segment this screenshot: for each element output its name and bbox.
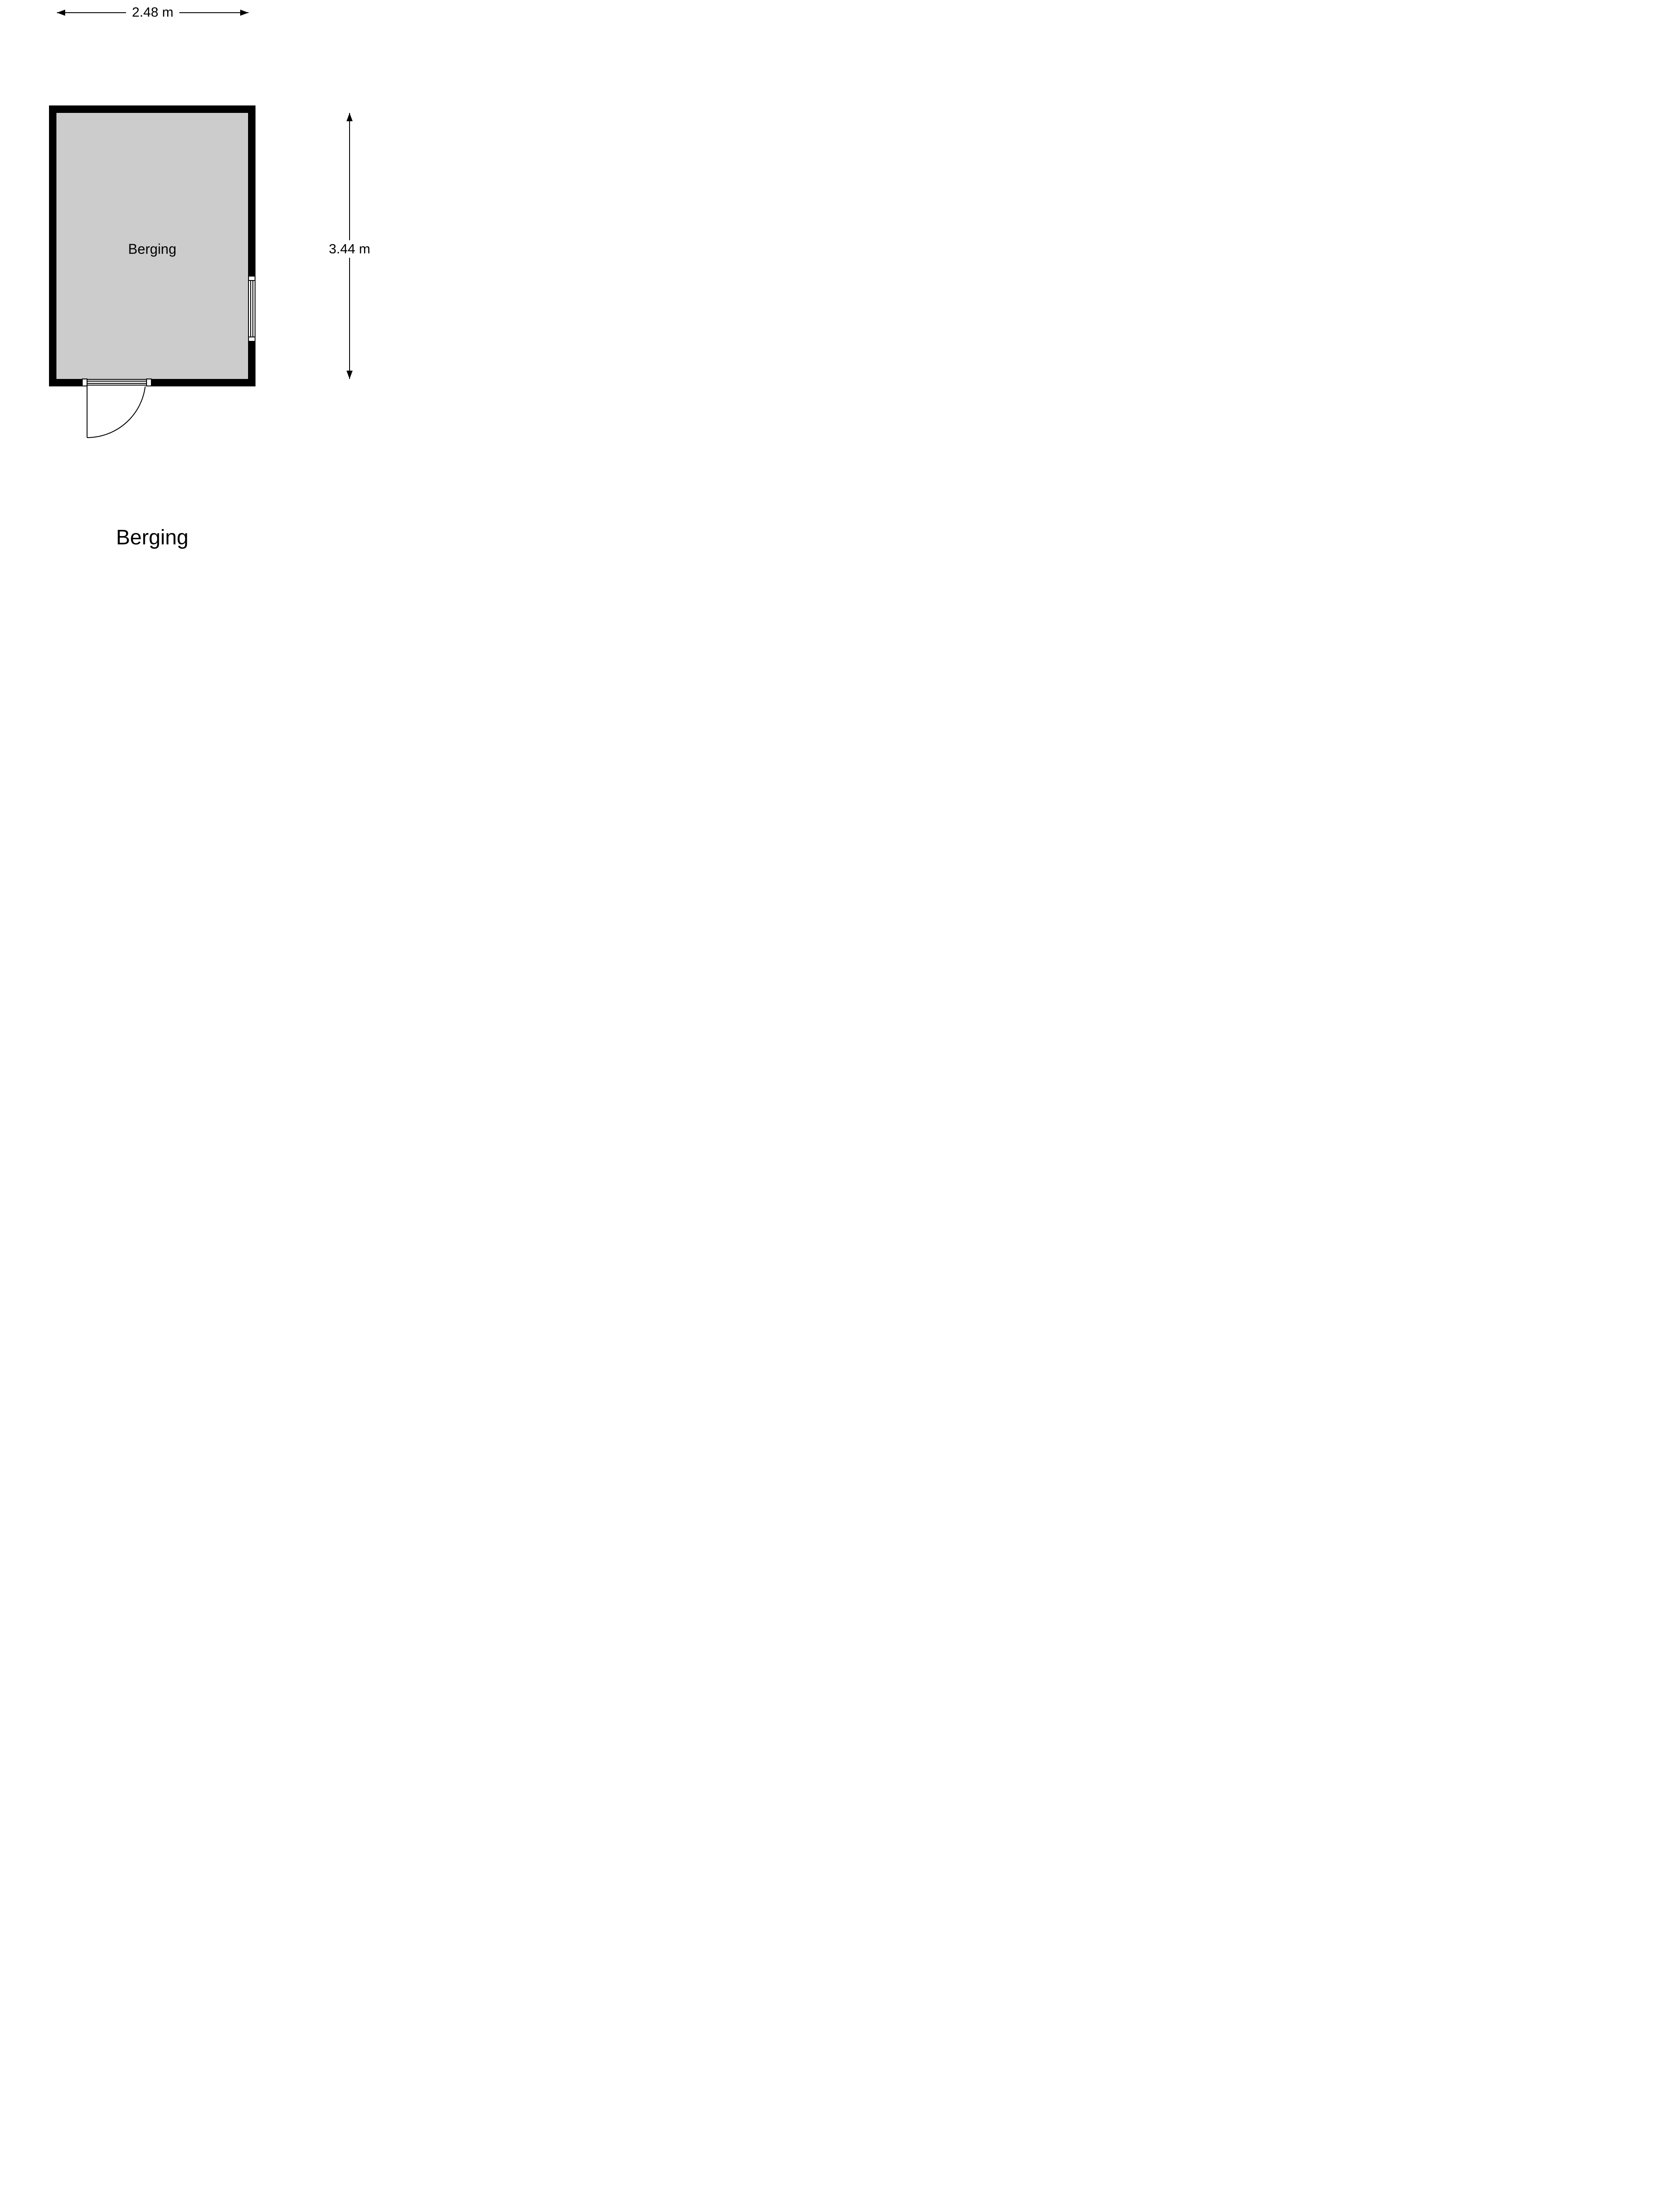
door-jamb-right bbox=[146, 379, 152, 386]
door-leaf bbox=[87, 386, 87, 438]
room-label: Berging bbox=[49, 240, 255, 258]
door-jamb-left bbox=[82, 379, 87, 386]
window-pane-divider bbox=[250, 281, 251, 337]
door-threshold bbox=[87, 379, 146, 386]
threshold-line bbox=[87, 381, 146, 382]
threshold-line bbox=[87, 383, 146, 384]
window-icon bbox=[248, 276, 255, 342]
window-sill-bottom bbox=[249, 337, 255, 337]
window-pane-divider bbox=[252, 281, 253, 337]
window-sill-top bbox=[249, 280, 255, 281]
arrow-down-icon bbox=[346, 371, 353, 379]
width-dimension-label: 2.48 m bbox=[57, 4, 248, 21]
height-dimension-label: 3.44 m bbox=[323, 240, 377, 258]
arrow-up-icon bbox=[346, 113, 353, 121]
page-title: Berging bbox=[49, 526, 255, 550]
floor-plan-canvas: 2.48 m 3.44 m Berging Berging bbox=[0, 0, 420, 560]
